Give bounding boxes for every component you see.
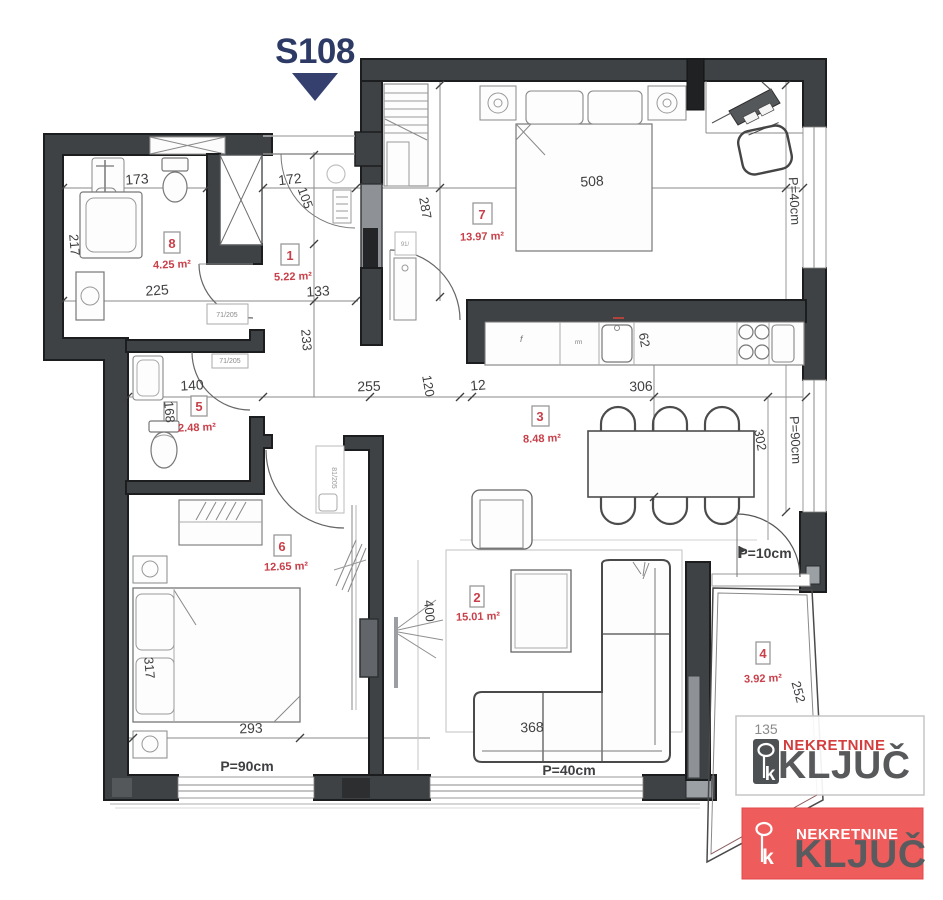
- svg-text:k: k: [762, 846, 774, 869]
- svg-text:317: 317: [141, 656, 158, 679]
- svg-text:KLJUČ: KLJUČ: [778, 742, 911, 787]
- svg-text:71/205: 71/205: [216, 312, 238, 319]
- svg-text:P=90cm: P=90cm: [220, 758, 273, 774]
- svg-text:91/: 91/: [401, 242, 410, 248]
- svg-text:15.01 m²: 15.01 m²: [456, 610, 501, 624]
- svg-text:k: k: [765, 764, 776, 785]
- svg-text:8.48 m²: 8.48 m²: [523, 432, 562, 445]
- svg-text:P=40cm: P=40cm: [786, 177, 803, 226]
- svg-text:508: 508: [580, 172, 604, 189]
- svg-text:12.65 m²: 12.65 m²: [264, 560, 309, 574]
- svg-text:172: 172: [277, 170, 302, 188]
- svg-text:168: 168: [161, 400, 178, 423]
- svg-text:293: 293: [239, 720, 263, 737]
- svg-text:1: 1: [286, 248, 293, 263]
- svg-text:71/205: 71/205: [219, 358, 241, 365]
- svg-text:2.48 m²: 2.48 m²: [178, 421, 217, 434]
- svg-text:P=10cm: P=10cm: [738, 545, 791, 561]
- svg-text:P=90cm: P=90cm: [787, 416, 804, 465]
- svg-text:3.92 m²: 3.92 m²: [744, 672, 783, 685]
- svg-text:2: 2: [473, 590, 480, 605]
- svg-text:255: 255: [357, 378, 381, 395]
- svg-text:rrn: rrn: [575, 340, 582, 346]
- svg-text:217: 217: [66, 233, 83, 256]
- svg-text:13.97 m²: 13.97 m²: [460, 230, 505, 244]
- svg-text:400: 400: [421, 599, 438, 622]
- svg-text:81/205: 81/205: [330, 467, 337, 489]
- svg-text:306: 306: [629, 378, 653, 395]
- svg-text:133: 133: [306, 282, 330, 299]
- svg-text:140: 140: [180, 376, 204, 393]
- svg-text:6: 6: [278, 539, 285, 554]
- svg-text:135: 135: [754, 721, 778, 737]
- svg-text:5.22 m²: 5.22 m²: [274, 270, 313, 283]
- svg-text:KLJUČ: KLJUČ: [794, 831, 927, 876]
- svg-text:173: 173: [125, 170, 150, 188]
- svg-text:7: 7: [478, 207, 485, 222]
- svg-text:233: 233: [298, 328, 315, 351]
- svg-text:S108: S108: [275, 32, 355, 71]
- svg-text:8: 8: [168, 236, 175, 251]
- svg-text:12: 12: [470, 376, 487, 393]
- svg-text:3: 3: [536, 409, 543, 424]
- svg-text:4.25 m²: 4.25 m²: [153, 258, 192, 271]
- svg-text:5: 5: [195, 399, 202, 414]
- svg-text:4: 4: [759, 646, 767, 661]
- svg-text:P=40cm: P=40cm: [542, 762, 595, 778]
- svg-text:225: 225: [145, 281, 170, 299]
- svg-text:368: 368: [520, 719, 544, 736]
- svg-text:62: 62: [636, 331, 653, 348]
